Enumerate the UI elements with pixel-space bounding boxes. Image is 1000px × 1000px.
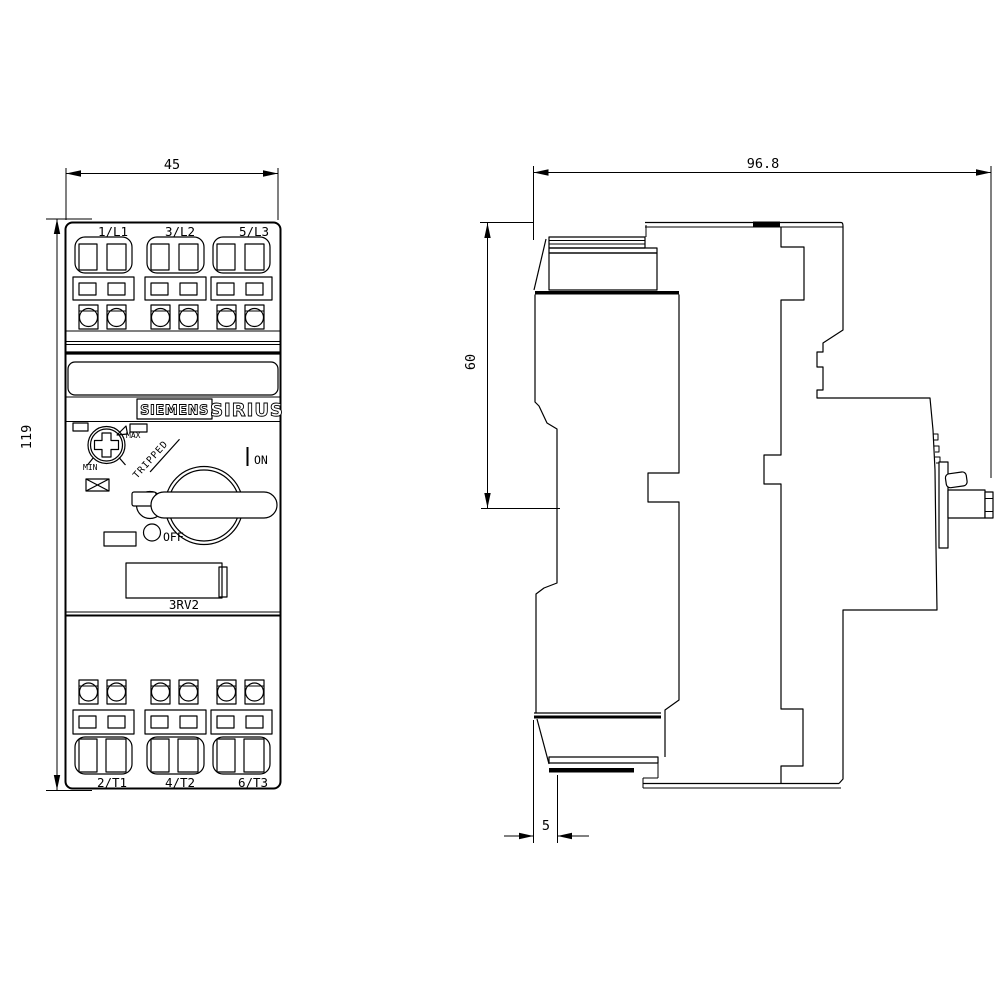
brand-row: SIEMENS SIRIUS xyxy=(66,397,284,422)
internal-contour-a xyxy=(648,295,679,758)
current-adjustment-dial[interactable]: MAX MIN xyxy=(73,423,147,472)
terminal-block xyxy=(211,680,272,774)
dial-max-label: MAX xyxy=(126,431,141,440)
terminal-label: 2/T1 xyxy=(97,775,127,790)
dimension-width: 45 xyxy=(66,157,278,220)
on-label: ON xyxy=(254,453,268,467)
side-front-profile xyxy=(817,223,937,784)
height-dim-label: 119 xyxy=(19,425,35,449)
side-view xyxy=(534,222,993,789)
handle-lever[interactable] xyxy=(151,492,277,518)
terminal-block xyxy=(145,680,206,774)
reset-slot xyxy=(104,532,136,546)
width-dim-label: 45 xyxy=(164,157,180,173)
dial-cross-slot-icon xyxy=(95,433,119,457)
off-marking: OFF xyxy=(144,524,184,544)
front-view: 1/L1 3/L2 5/L3 SIEMENS SIRIUS xyxy=(66,223,284,791)
terminal-block xyxy=(73,237,134,329)
brand-text: SIEMENS xyxy=(140,404,209,419)
on-marking: ON xyxy=(248,447,268,467)
terminal-label: 1/L1 xyxy=(98,224,128,239)
series-text: SIRIUS xyxy=(210,400,284,421)
dial-min-label: MIN xyxy=(83,463,98,472)
rotary-handle-side xyxy=(939,462,993,548)
dimension-din-clip: 5 xyxy=(504,720,589,843)
din-clip-dim-label: 5 xyxy=(542,818,550,834)
terminal-block xyxy=(73,680,134,774)
test-slider-icon[interactable] xyxy=(86,479,109,491)
terminal-block xyxy=(145,237,206,329)
terminal-label: 3/L2 xyxy=(165,224,195,239)
rotary-handle[interactable] xyxy=(132,467,277,545)
top-terminal-blocks: 1/L1 3/L2 5/L3 xyxy=(73,224,272,329)
handle-knob-side xyxy=(948,490,985,518)
terminal-label: 5/L3 xyxy=(239,224,269,239)
rating-label-field xyxy=(126,563,227,598)
top-gasket xyxy=(753,222,780,228)
handle-tab-side xyxy=(945,471,968,488)
terminal-block xyxy=(211,237,272,329)
terminal-label: 4/T2 xyxy=(165,775,195,790)
label-recess xyxy=(68,362,278,395)
dimension-depth: 96.8 xyxy=(534,156,992,478)
handle-knob-cap xyxy=(985,492,993,518)
depth-dim-label: 96.8 xyxy=(747,156,780,172)
upper-section-dim-label: 60 xyxy=(463,354,479,370)
internal-contour-b xyxy=(764,227,804,783)
terminal-label: 6/T3 xyxy=(238,775,268,790)
dial-mark-slot xyxy=(73,423,88,431)
dimension-upper-section: 60 xyxy=(463,223,560,509)
model-label: 3RV2 xyxy=(169,597,199,612)
bottom-terminal-blocks: 2/T1 4/T2 6/T3 xyxy=(73,680,272,790)
tripped-label: TRIPPED xyxy=(131,439,171,481)
off-label: OFF xyxy=(163,530,184,544)
dimensional-drawing: 1/L1 3/L2 5/L3 SIEMENS SIRIUS xyxy=(0,0,1000,1000)
vent-lines xyxy=(66,331,280,353)
